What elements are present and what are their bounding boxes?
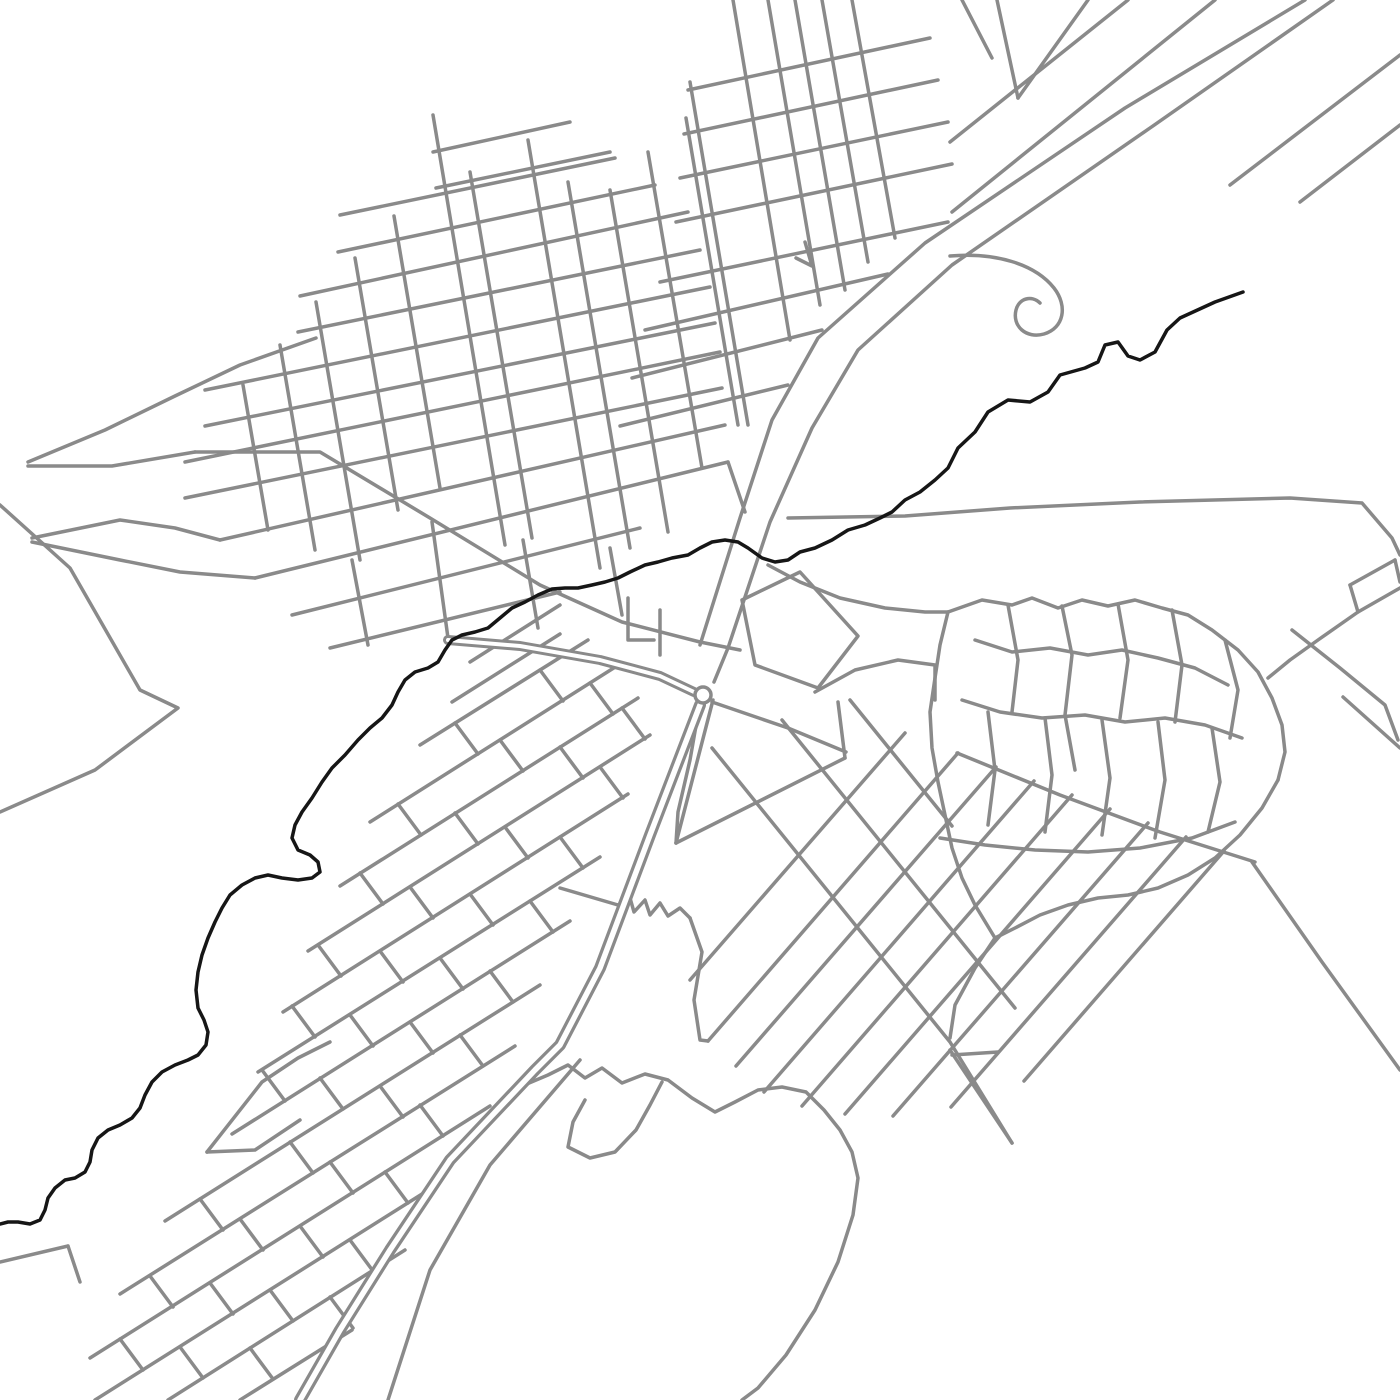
street-line	[500, 740, 523, 771]
street-line	[300, 1226, 323, 1257]
street-line	[1062, 606, 1075, 770]
street-line	[728, 462, 745, 512]
street-line	[318, 945, 341, 976]
street-line	[712, 702, 846, 752]
street-line	[460, 1035, 483, 1066]
street-line	[952, 1052, 998, 1055]
street-line	[243, 385, 268, 530]
street-line	[436, 152, 610, 188]
street-line	[648, 152, 702, 468]
street-line	[1155, 722, 1165, 838]
street-line	[350, 1015, 373, 1046]
street-line	[258, 857, 600, 1072]
street-line	[150, 1276, 173, 1307]
street-line	[398, 804, 421, 835]
street-line	[433, 122, 570, 152]
street-line	[560, 837, 583, 868]
street-line	[822, 0, 868, 262]
street-line	[975, 640, 1228, 685]
street-line	[686, 118, 738, 425]
street-line	[1350, 560, 1395, 585]
street-line	[540, 670, 563, 701]
street-line	[660, 222, 948, 282]
street-line	[207, 1042, 330, 1152]
street-line	[370, 664, 620, 822]
street-line	[802, 795, 1072, 1106]
street-line	[330, 1162, 353, 1193]
street-line	[505, 827, 528, 858]
street-line	[1350, 585, 1400, 612]
street-line	[690, 82, 748, 425]
street-line	[893, 823, 1148, 1116]
street-line	[962, 0, 992, 58]
street-line	[768, 565, 948, 612]
divided-road-casing	[448, 640, 694, 692]
street-line	[0, 1246, 68, 1262]
street-line	[736, 767, 996, 1066]
street-line	[340, 698, 638, 886]
street-line	[742, 572, 858, 688]
street-line	[440, 958, 463, 989]
street-line	[298, 250, 700, 332]
street-line	[708, 753, 958, 1041]
street-line	[210, 1283, 233, 1314]
street-line	[470, 894, 493, 925]
street-line	[316, 302, 360, 560]
street-line	[1018, 0, 1088, 98]
street-line	[645, 274, 888, 330]
street-line	[455, 723, 478, 754]
street-line	[292, 1006, 315, 1037]
street-line	[622, 708, 645, 739]
street-line	[1230, 55, 1400, 185]
street-line	[676, 164, 952, 222]
street-line	[850, 700, 952, 826]
street-line	[1252, 862, 1400, 1070]
street-line	[410, 1022, 433, 1053]
street-line	[240, 1219, 263, 1250]
street-line	[733, 0, 790, 340]
street-line	[232, 921, 570, 1134]
street-line	[410, 887, 433, 918]
street-line	[28, 452, 195, 466]
street-line	[355, 258, 398, 510]
street-line	[394, 216, 440, 488]
street-line	[200, 1199, 223, 1230]
street-line	[120, 1339, 143, 1370]
street-line	[338, 185, 655, 252]
street-line	[32, 520, 220, 540]
street-line	[320, 1078, 343, 1109]
street-line	[1300, 125, 1400, 202]
street-line	[1024, 851, 1224, 1081]
street-line	[1225, 640, 1238, 738]
street-line	[270, 1290, 293, 1321]
street-line	[120, 1046, 515, 1294]
street-line	[995, 780, 1278, 938]
street-line	[360, 873, 383, 904]
street-line	[0, 505, 178, 812]
street-line	[600, 767, 623, 798]
street-line	[712, 748, 1012, 1143]
spiral-culdesac	[950, 255, 1062, 335]
street-line	[250, 1348, 273, 1379]
street-line	[690, 733, 905, 980]
street-line	[788, 498, 1400, 555]
map-viewport[interactable]	[0, 0, 1400, 1400]
street-line	[530, 901, 553, 932]
street-line	[68, 1246, 80, 1282]
street-line	[1118, 604, 1128, 718]
street-line	[352, 560, 368, 645]
street-line	[590, 683, 613, 714]
street-line	[180, 1347, 203, 1378]
street-line	[1008, 605, 1018, 712]
street-line	[290, 1142, 313, 1173]
roundabout	[695, 687, 711, 703]
street-line	[568, 1082, 662, 1158]
street-line	[628, 598, 654, 640]
street-line	[1172, 610, 1182, 722]
street-line	[455, 813, 478, 844]
street-line	[680, 122, 948, 178]
street-line	[420, 1105, 443, 1136]
street-line	[522, 1065, 858, 1400]
street-line	[95, 1189, 430, 1400]
street-line	[560, 747, 583, 778]
street-line	[1395, 560, 1400, 582]
street-line	[32, 542, 255, 578]
street-line	[948, 598, 1285, 780]
street-line	[700, 0, 1305, 645]
street-line	[952, 0, 1215, 212]
street-line	[350, 1240, 373, 1271]
street-line	[1045, 718, 1052, 832]
street-line	[490, 971, 513, 1002]
street-line	[385, 1172, 408, 1203]
street-line	[997, 0, 1018, 98]
street-line	[380, 951, 403, 982]
street-line	[1208, 728, 1220, 832]
street-map-svg	[0, 0, 1400, 1400]
street-line	[280, 345, 315, 550]
street-line	[470, 172, 532, 538]
street-line	[380, 1086, 403, 1117]
